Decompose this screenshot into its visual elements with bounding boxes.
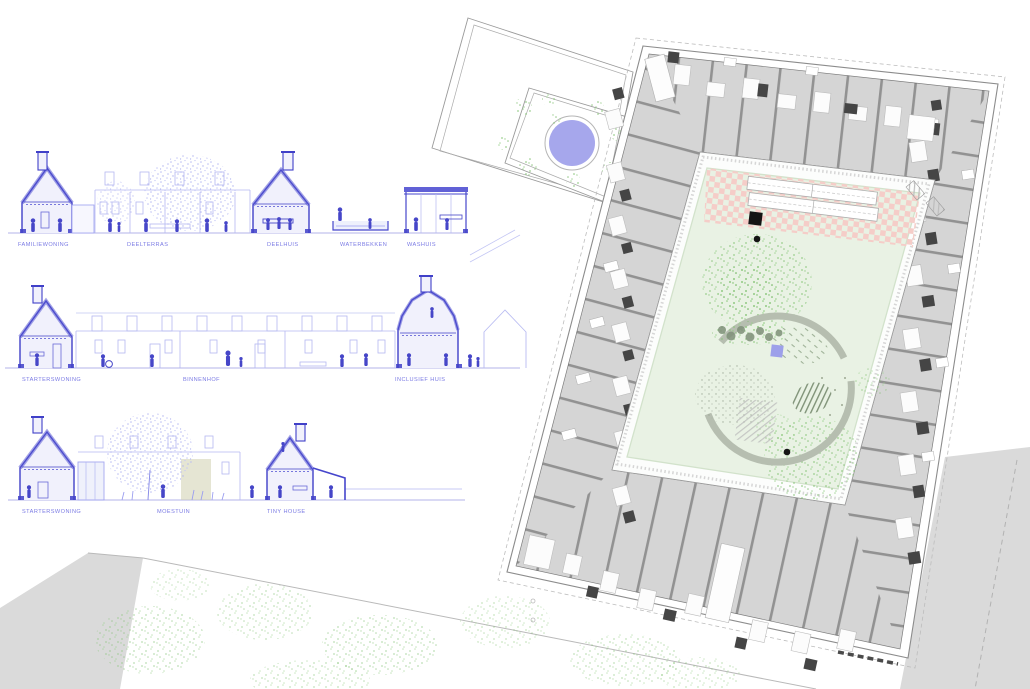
- section-starterswoning-2: [18, 417, 76, 500]
- site-drawing: FAMILIEWONING DEELTERRAS DEELHUIS WATERB…: [0, 0, 1030, 689]
- section-label-tiny-house: TINY HOUSE: [267, 509, 306, 515]
- section-binnenhof: [76, 313, 395, 368]
- section-label-washuis: WASHUIS: [407, 242, 436, 248]
- section-label-deelterras: DEELTERRAS: [127, 242, 168, 248]
- architectural-drawing-sheet: FAMILIEWONING DEELTERRAS DEELHUIS WATERB…: [0, 0, 1030, 689]
- section-familiewoning: [20, 152, 74, 233]
- sections-row-2: [5, 276, 526, 368]
- section-label-starterswoning-1: STARTERSWONING: [22, 377, 81, 383]
- marker-dot: [784, 449, 791, 456]
- marker-dot: [754, 236, 761, 243]
- section-label-binnenhof: BINNENHOF: [183, 377, 220, 383]
- section-moestuin: [78, 413, 240, 500]
- section-tiny-house: [250, 424, 345, 500]
- sections-row-3: [8, 413, 465, 500]
- section-starterswoning-1: [18, 286, 74, 368]
- section-washuis: [404, 187, 468, 233]
- section-label-moestuin: MOESTUIN: [157, 509, 190, 515]
- section-label-starterswoning-2: STARTERSWONING: [22, 509, 81, 515]
- section-label-waterbekken: WATERBEKKEN: [340, 242, 387, 248]
- marker-square: [748, 211, 762, 225]
- section-inclusief-huis: [396, 276, 462, 368]
- section-label-deelhuis: DEELHUIS: [267, 242, 299, 248]
- section-waterbekken: [333, 207, 388, 230]
- pond: [549, 120, 595, 166]
- section-label-inclusief-huis: INCLUSIEF HUIS: [395, 377, 445, 383]
- sections-row-1: [8, 152, 520, 262]
- section-label-familiewoning: FAMILIEWONING: [18, 242, 69, 248]
- section-deelhuis: [251, 152, 311, 233]
- planting-patch: [735, 398, 778, 444]
- marker-blue-square: [770, 344, 783, 357]
